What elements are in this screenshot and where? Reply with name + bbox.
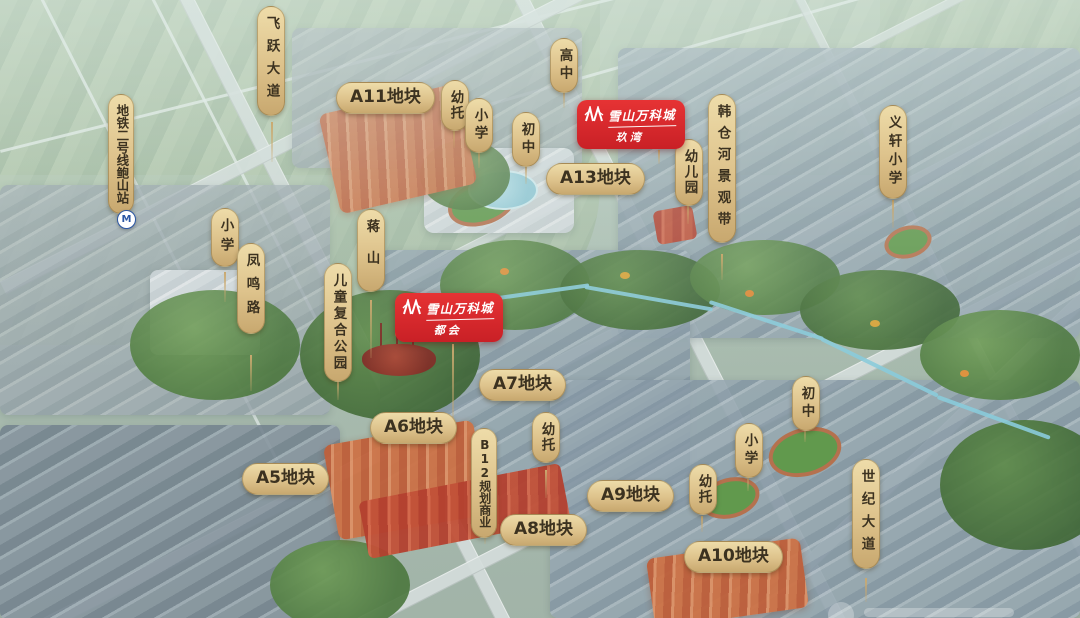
children-park-ship (362, 344, 436, 376)
leader-line (721, 254, 723, 280)
facility-label-primary-right: 小学 (735, 423, 763, 478)
plot-label-a8: A8地块 (500, 514, 587, 546)
leader-line (224, 272, 226, 302)
project-phase-name: 玖湾 (584, 129, 676, 145)
facility-label-nursery: 幼儿园 (675, 139, 703, 206)
leader-line (658, 150, 660, 164)
brand-logo-icon (402, 299, 422, 319)
leader-line (545, 470, 547, 498)
tree-accent (745, 290, 754, 297)
brand-logo-icon (584, 106, 604, 126)
plot-label-a9: A9地块 (587, 480, 674, 512)
leader-line (250, 355, 252, 391)
project-phase-name: 都会 (402, 322, 494, 338)
facility-label-kindergarten-center: 幼托 (532, 412, 560, 463)
ship-mast (380, 323, 382, 347)
facility-label-junior-right: 初中 (792, 376, 820, 431)
tree-accent (500, 268, 509, 275)
landmark-label-children-park: 儿童复合公园 (324, 263, 352, 382)
leader-line (370, 300, 372, 358)
plot-label-a10: A10地块 (684, 541, 783, 573)
leader-line (271, 122, 273, 162)
plot-label-a6: A6地块 (370, 412, 457, 444)
facility-label-kindergarten-right: 幼托 (689, 464, 717, 515)
leader-line (865, 578, 867, 602)
project-name: 雪山万科城 (426, 297, 494, 321)
facility-label-yixuan-primary: 义轩小学 (879, 105, 907, 199)
facility-label-primary-left: 小学 (211, 208, 239, 267)
road-label-century-avenue: 世纪大道 (852, 459, 880, 569)
river-grove (920, 310, 1080, 400)
facility-label-senior-high: 高中 (550, 38, 578, 93)
masterplan-aerial-map: 飞跃大道 地铁二号线鲍山站 A11地块 幼托 小学 初中 高中 A13地块 幼儿… (0, 0, 1080, 618)
project-badge-jiuwan: 雪山万科城 玖湾 (577, 100, 685, 149)
road-label-feiyue-avenue: 飞跃大道 (257, 6, 285, 116)
metro-station-label: 地铁二号线鲍山站 (108, 94, 134, 214)
plot-label-b12-commercial: B12规划商业 (471, 428, 497, 538)
mid-rise-orange-building (652, 205, 697, 245)
plot-label-a13: A13地块 (546, 163, 645, 195)
park-grove (130, 290, 300, 400)
facility-label-junior-top: 初中 (512, 112, 540, 167)
project-badge-duhui: 雪山万科城 都会 (395, 293, 503, 342)
metro-station-icon: M (117, 210, 136, 229)
landmark-label-jiangshan: 蒋山 (357, 209, 385, 292)
tree-accent (960, 370, 969, 377)
tree-accent (620, 272, 630, 279)
road-label-fengming-road: 凤鸣路 (237, 243, 265, 334)
leader-line (453, 128, 455, 148)
tree-accent (870, 320, 880, 327)
plot-label-a5: A5地块 (242, 463, 329, 495)
plot-label-a11: A11地块 (336, 82, 435, 114)
landmark-label-hancang-river-belt: 韩仓河景观带 (708, 94, 736, 243)
facility-label-primary-top: 小学 (465, 98, 493, 153)
project-name: 雪山万科城 (608, 104, 676, 128)
watermark-text (864, 608, 1014, 617)
metro-glyph: M (122, 214, 132, 225)
leader-line (892, 200, 894, 228)
leader-line (701, 516, 703, 532)
plot-label-a7: A7地块 (479, 369, 566, 401)
